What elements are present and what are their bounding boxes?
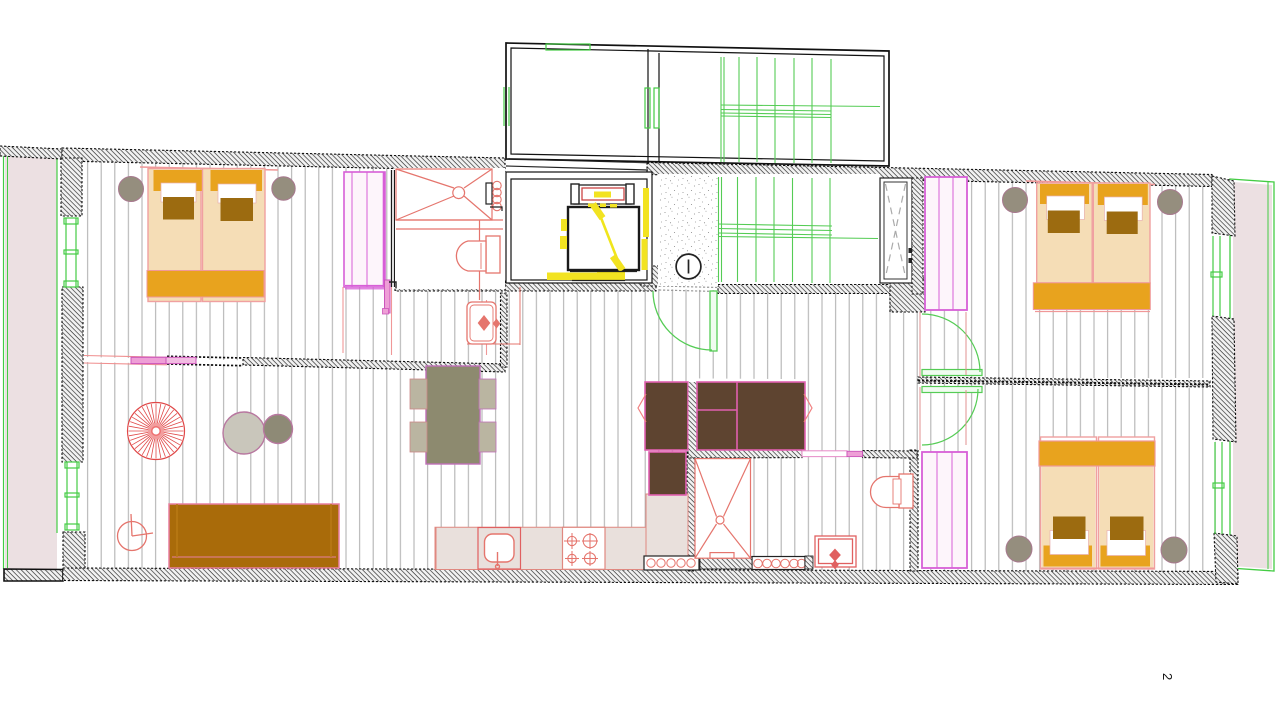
svg-text:2: 2 xyxy=(1160,673,1175,680)
